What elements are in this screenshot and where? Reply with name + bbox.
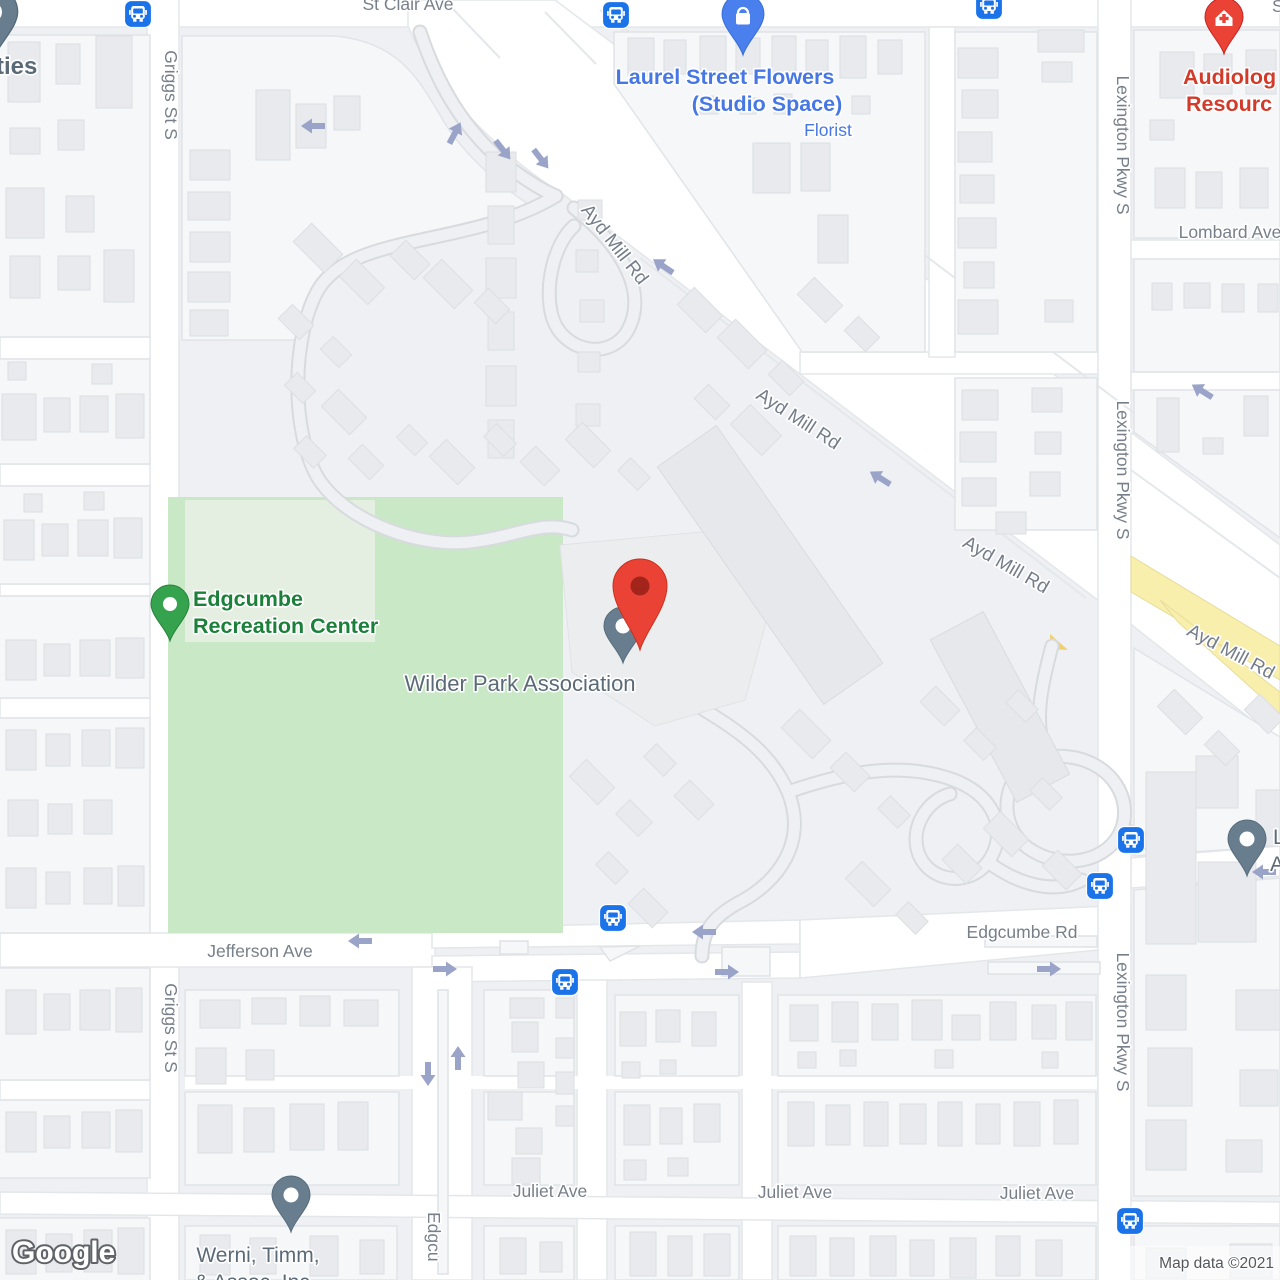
street-label: S — [1272, 0, 1280, 16]
poi-label-laurel-line1[interactable]: Laurel Street Flowers — [616, 65, 835, 89]
park-area — [168, 497, 563, 933]
bus-stop-icon[interactable] — [552, 969, 579, 996]
map-data-attribution: Map data ©2021 — [1159, 1255, 1274, 1272]
poi-label-recreation-line2[interactable]: Recreation Center — [193, 614, 379, 638]
street-label: Edgcu — [424, 1212, 444, 1262]
bus-stop-icon[interactable] — [603, 2, 630, 29]
street-label: Juliet Ave — [758, 1182, 833, 1202]
poi-label-partial-left[interactable]: ties — [0, 53, 37, 80]
map-svg: St Clair Ave S Griggs St S Griggs St S A… — [0, 0, 1280, 1280]
street-label: Griggs St S — [161, 50, 181, 139]
street-label: Lexington Pkwy S — [1113, 400, 1133, 539]
bus-stop-icon[interactable] — [600, 905, 627, 932]
poi-label-werni-line1[interactable]: Werni, Timm, — [196, 1244, 319, 1267]
bus-stop-icon[interactable] — [1118, 827, 1145, 854]
street-label: Lombard Ave — [1179, 222, 1280, 242]
street-label: Lexington Pkwy S — [1113, 952, 1133, 1091]
street-label: Juliet Ave — [513, 1181, 588, 1201]
street-label: Edgcumbe Rd — [967, 922, 1078, 942]
google-logo[interactable]: Google — [12, 1236, 115, 1269]
poi-label-wilder[interactable]: Wilder Park Association — [404, 671, 635, 696]
map-canvas[interactable]: St Clair Ave S Griggs St S Griggs St S A… — [0, 0, 1280, 1280]
poi-label-audiology-line1[interactable]: Audiolog — [1183, 65, 1276, 89]
street-label: Lexington Pkwy S — [1113, 75, 1133, 214]
bus-stop-icon[interactable] — [976, 0, 1003, 20]
bus-stop-icon[interactable] — [125, 1, 152, 28]
street-label: Juliet Ave — [1000, 1183, 1075, 1203]
bus-stop-icon[interactable] — [1087, 873, 1114, 900]
street-label: St Clair Ave — [362, 0, 453, 14]
street-label: Jefferson Ave — [207, 941, 312, 961]
poi-label-laurel-line2[interactable]: (Studio Space) — [692, 92, 843, 116]
poi-label-werni-line2[interactable]: & Assoc. Inc — [194, 1271, 310, 1280]
poi-label-partial-right-line2[interactable]: A — [1270, 853, 1280, 876]
poi-label-laurel-category[interactable]: Florist — [804, 120, 852, 140]
poi-label-partial-right-line1[interactable]: L — [1273, 826, 1280, 849]
poi-label-audiology-line2[interactable]: Resourc — [1186, 92, 1272, 116]
poi-label-recreation-line1[interactable]: Edgcumbe — [193, 587, 303, 611]
street-label: Griggs St S — [161, 983, 181, 1072]
bus-stop-icon[interactable] — [1117, 1208, 1144, 1235]
